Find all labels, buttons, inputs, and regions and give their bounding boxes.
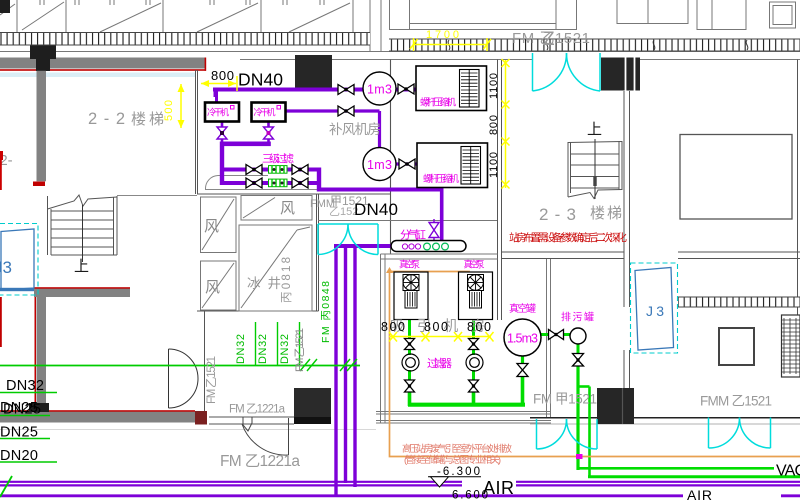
svg-text:真空罐: 真空罐 bbox=[509, 302, 536, 315]
svg-text:DN32: DN32 bbox=[279, 334, 291, 364]
svg-text:分气缸: 分气缸 bbox=[400, 228, 426, 242]
svg-text:排污罐: 排污罐 bbox=[561, 311, 594, 324]
svg-text:丙0818: 丙0818 bbox=[281, 257, 293, 303]
svg-text:真空泵: 真空泵 bbox=[399, 259, 420, 270]
svg-text:螺杆压缩机: 螺杆压缩机 bbox=[423, 173, 459, 185]
svg-text:800: 800 bbox=[381, 320, 405, 334]
svg-text:1m3: 1m3 bbox=[367, 158, 392, 172]
svg-text:FMM 乙1521: FMM 乙1521 bbox=[700, 394, 772, 409]
svg-text:Z: Z bbox=[543, 29, 555, 50]
svg-text:上: 上 bbox=[74, 258, 89, 275]
svg-text:2-2: 2-2 bbox=[88, 110, 125, 128]
svg-text:高压站房废气引至室外平台处排放: 高压站房废气引至室外平台处排放 bbox=[402, 443, 512, 455]
svg-text:1m3: 1m3 bbox=[367, 83, 392, 97]
svg-text:冷干机: 冷干机 bbox=[254, 107, 276, 118]
svg-text:DN20: DN20 bbox=[0, 448, 38, 464]
svg-text:1100: 1100 bbox=[488, 152, 500, 178]
svg-text:1100: 1100 bbox=[488, 73, 500, 99]
svg-text:三级过滤: 三级过滤 bbox=[262, 152, 295, 165]
svg-text:FM 乙1221a: FM 乙1221a bbox=[229, 403, 286, 416]
svg-text:DN40: DN40 bbox=[354, 200, 398, 219]
svg-text:补风机房: 补风机房 bbox=[329, 122, 381, 137]
svg-text:楼梯: 楼梯 bbox=[590, 205, 622, 222]
svg-text:VAC: VAC bbox=[776, 463, 800, 480]
svg-text:风: 风 bbox=[280, 200, 295, 217]
svg-text:500: 500 bbox=[163, 100, 175, 121]
svg-text:FM 乙1521: FM 乙1521 bbox=[205, 356, 218, 404]
svg-text:AIR: AIR bbox=[483, 478, 514, 498]
svg-text:800: 800 bbox=[211, 68, 234, 83]
svg-text:AIR: AIR bbox=[687, 487, 712, 500]
svg-text:DN32: DN32 bbox=[257, 334, 269, 364]
svg-text:FM 乙1521: FM 乙1521 bbox=[293, 328, 306, 372]
svg-text:真空泵: 真空泵 bbox=[464, 259, 485, 270]
svg-text:风: 风 bbox=[205, 279, 220, 296]
svg-text:FM 丙0848: FM 丙0848 bbox=[320, 281, 332, 343]
svg-text:上: 上 bbox=[587, 121, 602, 138]
svg-text:800: 800 bbox=[467, 320, 491, 334]
svg-text:800: 800 bbox=[488, 115, 500, 135]
svg-text:冷干机: 冷干机 bbox=[207, 107, 229, 118]
svg-text:DN32: DN32 bbox=[6, 378, 44, 394]
svg-text:(管接至储罐,与总图专业相关): (管接至储罐,与总图专业相关) bbox=[404, 454, 501, 466]
svg-text:DN40: DN40 bbox=[238, 70, 283, 90]
svg-text:过滤器: 过滤器 bbox=[427, 357, 452, 370]
svg-text:1.5m3: 1.5m3 bbox=[507, 332, 538, 346]
svg-text:2-3: 2-3 bbox=[539, 205, 576, 224]
svg-text:800: 800 bbox=[424, 320, 448, 334]
svg-text:DN32: DN32 bbox=[235, 334, 247, 364]
svg-text:FM 乙1221a: FM 乙1221a bbox=[220, 453, 300, 470]
svg-text:DN25: DN25 bbox=[3, 402, 41, 418]
svg-text:DN25: DN25 bbox=[0, 425, 38, 441]
svg-text:风: 风 bbox=[204, 218, 219, 235]
svg-text:-6.300: -6.300 bbox=[437, 466, 480, 478]
svg-text:J3: J3 bbox=[0, 258, 12, 277]
svg-text:FM 甲1521: FM 甲1521 bbox=[533, 392, 597, 407]
svg-text:螺杆压缩机: 螺杆压缩机 bbox=[420, 97, 456, 109]
svg-text:站房布置需设备参数确定后二次深化: 站房布置需设备参数确定后二次深化 bbox=[509, 231, 628, 244]
